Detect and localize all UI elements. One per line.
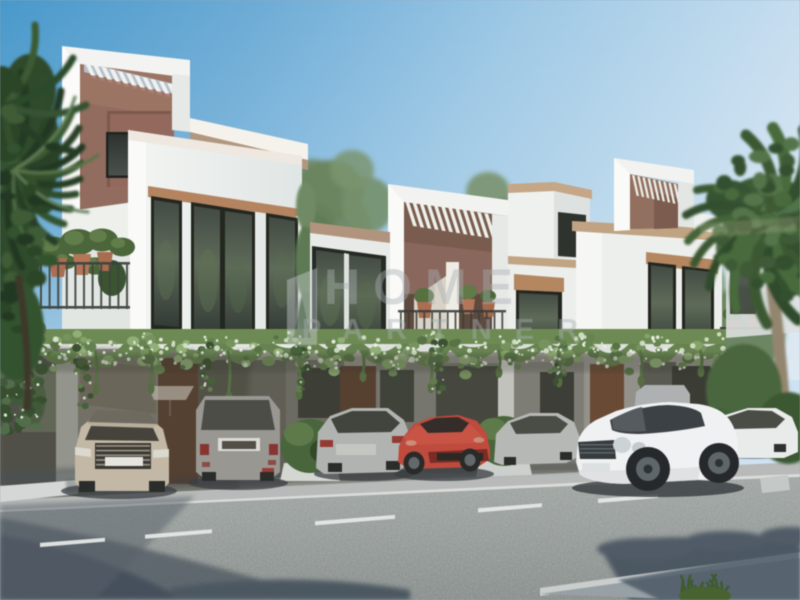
svg-text:HOME: HOME bbox=[324, 259, 526, 315]
svg-text:PARTNER: PARTNER bbox=[302, 314, 601, 346]
